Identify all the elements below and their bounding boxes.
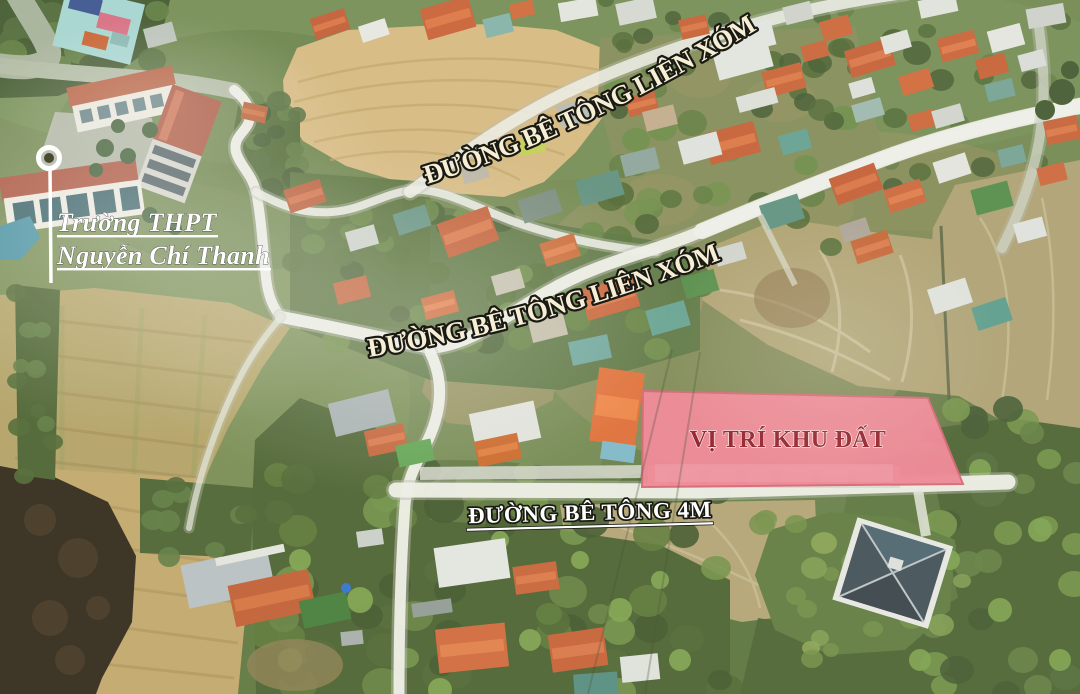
svg-text:Trường THPT: Trường THPT [57, 208, 218, 237]
svg-text:Nguyễn Chí Thanh: Nguyễn Chí Thanh [56, 241, 270, 270]
